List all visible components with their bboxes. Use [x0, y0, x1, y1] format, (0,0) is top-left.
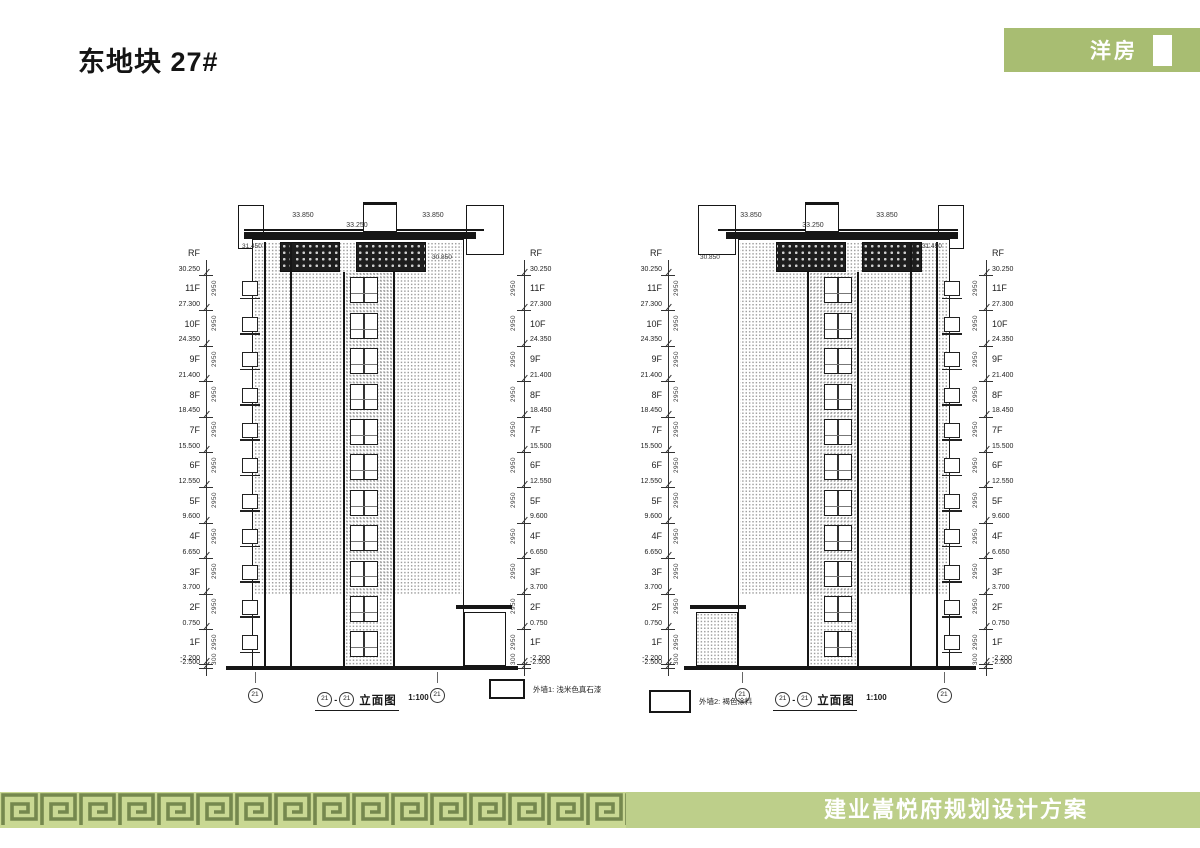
dim-label: 2950 — [211, 280, 218, 296]
dim-label: 2950 — [673, 598, 680, 614]
parapet-elev-label: 30.850 — [432, 254, 452, 261]
small-window — [944, 458, 960, 473]
level-tick — [979, 452, 993, 453]
elevation-label: 27.300 — [166, 301, 200, 308]
window — [350, 631, 378, 657]
ground-line — [226, 666, 518, 670]
level-tick — [199, 452, 213, 453]
elevation-label: 15.500 — [992, 443, 1026, 450]
dim-label: 2950 — [673, 386, 680, 402]
dim-label: 2950 — [510, 351, 517, 367]
axis-bubble: 21 — [797, 692, 812, 707]
elevation-label: 6.650 — [166, 549, 200, 556]
greek-key-pattern — [0, 792, 626, 828]
level-tick — [517, 452, 531, 453]
level-tick — [517, 668, 531, 669]
level-tick — [199, 417, 213, 418]
dim-label: 2950 — [972, 457, 979, 473]
level-tick — [661, 381, 675, 382]
dim-label: 300 — [972, 653, 979, 665]
dim-label: 2950 — [972, 563, 979, 579]
elevation-label: 24.350 — [628, 336, 662, 343]
elevation-label: 0.750 — [166, 620, 200, 627]
caption-title: 立面图 — [359, 692, 397, 708]
dim-label: 2950 — [972, 315, 979, 331]
annex-canopy — [690, 605, 746, 609]
elevation-label: 24.350 — [992, 336, 1026, 343]
floor-label: 9F — [166, 354, 200, 364]
elevation-label: 15.500 — [628, 443, 662, 450]
roof-dim-label: 33.850 — [852, 212, 922, 219]
window — [350, 525, 378, 551]
legend-label: 外墙2: 褐色涂料 — [699, 696, 752, 707]
dim-label: 2950 — [972, 492, 979, 508]
elevation-label: 21.400 — [530, 372, 564, 379]
floor-label: 10F — [530, 319, 564, 329]
level-tick — [979, 381, 993, 382]
decorative-lattice-band — [280, 242, 340, 272]
axis-bubble: 21 — [775, 692, 790, 707]
window — [824, 596, 852, 622]
dim-label: 2950 — [211, 528, 218, 544]
small-window — [242, 317, 258, 332]
floor-label: 5F — [628, 496, 662, 506]
elevation-label: 27.300 — [628, 301, 662, 308]
ground-line — [684, 666, 976, 670]
small-window — [944, 423, 960, 438]
project-title: 建业嵩悦府规划设计方案 — [824, 792, 1088, 828]
axis-bubble: 21 — [317, 692, 332, 707]
dim-label: 2950 — [673, 528, 680, 544]
legend-swatch — [489, 679, 525, 699]
dim-label: 2950 — [673, 315, 680, 331]
small-window — [242, 635, 258, 650]
level-tick — [661, 452, 675, 453]
dim-label: 2950 — [510, 634, 517, 650]
level-tick — [517, 629, 531, 630]
caption-scale: 1:100 — [866, 693, 886, 702]
dim-label: 2950 — [510, 386, 517, 402]
floor-label: 11F — [628, 283, 662, 293]
floor-label: 3F — [530, 567, 564, 577]
decorative-lattice-band — [356, 242, 426, 272]
small-window — [944, 635, 960, 650]
level-scale-right-outer: RF30.250295011F27.300295010F24.35029509F… — [968, 168, 1026, 684]
floor-label: 1F — [628, 637, 662, 647]
window — [824, 490, 852, 516]
elevation-label: 6.650 — [628, 549, 662, 556]
small-window — [944, 565, 960, 580]
elevation-label: 3.700 — [166, 584, 200, 591]
dim-label: 2950 — [211, 492, 218, 508]
elevation-label: 21.400 — [628, 372, 662, 379]
floor-label: 8F — [166, 390, 200, 400]
level-tick — [517, 487, 531, 488]
roof-slab — [726, 232, 958, 239]
small-window — [242, 458, 258, 473]
parapet-elev-label: 31.450 — [922, 243, 942, 250]
dim-label: 2950 — [211, 457, 218, 473]
level-tick — [199, 310, 213, 311]
elevation-label: 9.600 — [628, 513, 662, 520]
elevation-label: 30.250 — [628, 266, 662, 273]
elevation-label: -2.500 — [628, 659, 662, 666]
window — [824, 384, 852, 410]
level-tick — [199, 275, 213, 276]
dim-label: 2950 — [211, 351, 218, 367]
elevation-label: 15.500 — [530, 443, 564, 450]
small-window — [944, 600, 960, 615]
parapet-elev-label: 31.450 — [242, 243, 262, 250]
dim-label: 2950 — [673, 634, 680, 650]
roof-dim-label: 33.850 — [398, 212, 468, 219]
small-window — [242, 388, 258, 403]
elevation-label: -2.500 — [992, 659, 1026, 666]
floor-label: 4F — [992, 531, 1026, 541]
elevation-label: 0.750 — [992, 620, 1026, 627]
dim-label: 2950 — [510, 457, 517, 473]
elevation-label: 18.450 — [992, 407, 1026, 414]
floor-label: 4F — [166, 531, 200, 541]
dim-label: 2950 — [510, 492, 517, 508]
small-window — [944, 388, 960, 403]
floor-label: 11F — [992, 283, 1026, 293]
dim-label: 2950 — [211, 634, 218, 650]
legend-label: 外墙1: 浅米色真石漆 — [533, 684, 601, 695]
dim-label: 2950 — [211, 563, 218, 579]
floor-label: 6F — [530, 460, 564, 470]
floor-label: 5F — [166, 496, 200, 506]
axis-separator: - — [334, 695, 337, 705]
level-tick — [661, 417, 675, 418]
window — [350, 277, 378, 303]
dim-label: 2950 — [673, 492, 680, 508]
level-scale-left-outer: RF30.250295011F27.300295010F24.35029509F… — [166, 168, 224, 684]
floor-label: 4F — [530, 531, 564, 541]
floor-label: 3F — [628, 567, 662, 577]
small-window — [242, 529, 258, 544]
decorative-lattice-band — [776, 242, 846, 272]
decorative-lattice-band — [862, 242, 922, 272]
level-tick — [979, 346, 993, 347]
presentation-slide: 东地块 27# 洋房 RF30.250295011F27.300295010F2… — [0, 0, 1200, 848]
axis-separator: - — [792, 695, 795, 705]
level-tick — [517, 310, 531, 311]
facade-line — [910, 242, 912, 668]
level-tick — [661, 346, 675, 347]
legend-exterior-wall-2: 外墙2: 褐色涂料 — [649, 690, 752, 713]
dim-label: 300 — [510, 653, 517, 665]
small-window — [944, 494, 960, 509]
dim-label: 2950 — [972, 634, 979, 650]
level-tick — [661, 275, 675, 276]
dim-label: 2950 — [972, 421, 979, 437]
small-window — [944, 317, 960, 332]
floor-label: 9F — [628, 354, 662, 364]
badge-marker-icon — [1153, 35, 1172, 66]
roof-slab — [244, 232, 476, 239]
level-tick — [199, 346, 213, 347]
floor-label: 4F — [628, 531, 662, 541]
floor-label: RF — [530, 248, 564, 258]
level-tick — [199, 668, 213, 669]
floor-label: 1F — [530, 637, 564, 647]
floor-label: 10F — [628, 319, 662, 329]
elevation-label: 9.600 — [992, 513, 1026, 520]
elevation-label: -2.500 — [166, 659, 200, 666]
floor-label: 9F — [530, 354, 564, 364]
level-tick — [661, 558, 675, 559]
window — [350, 348, 378, 374]
window — [350, 419, 378, 445]
window — [350, 384, 378, 410]
dim-label: 2950 — [510, 421, 517, 437]
legend-swatch — [649, 690, 691, 713]
elevation-label: 0.750 — [530, 620, 564, 627]
facade-line — [936, 242, 938, 668]
caption-scale: 1:100 — [408, 693, 428, 702]
floor-label: 11F — [166, 283, 200, 293]
dim-label: 2950 — [673, 421, 680, 437]
level-tick — [979, 487, 993, 488]
small-window — [242, 600, 258, 615]
building-elevation-left — [238, 168, 506, 680]
elevation-label: 12.550 — [992, 478, 1026, 485]
level-tick — [199, 381, 213, 382]
elevation-label: 24.350 — [530, 336, 564, 343]
floor-label: 5F — [530, 496, 564, 506]
window — [824, 631, 852, 657]
dim-label: 2950 — [510, 315, 517, 331]
small-window — [944, 281, 960, 296]
category-badge: 洋房 — [1004, 28, 1200, 72]
parapet-elev-label: 30.850 — [700, 254, 720, 261]
floor-label: RF — [166, 248, 200, 258]
level-tick — [661, 487, 675, 488]
window — [824, 561, 852, 587]
window — [824, 525, 852, 551]
floor-label: 1F — [992, 637, 1026, 647]
dim-label: 2950 — [673, 280, 680, 296]
roof-dim-label: 33.250 — [322, 222, 392, 229]
elevation-label: 9.600 — [166, 513, 200, 520]
dim-label: 2950 — [510, 528, 517, 544]
elevation-label: 18.450 — [530, 407, 564, 414]
elevation-label: 3.700 — [530, 584, 564, 591]
dim-label: 300 — [673, 653, 680, 665]
level-tick — [517, 346, 531, 347]
level-tick — [199, 523, 213, 524]
window — [350, 454, 378, 480]
roof-dim-label: 33.850 — [268, 212, 338, 219]
dim-label: 2950 — [673, 563, 680, 579]
window — [824, 313, 852, 339]
scale-line — [986, 260, 987, 676]
floor-label: RF — [992, 248, 1026, 258]
roof-dim-label: 33.850 — [716, 212, 786, 219]
floor-label: 2F — [530, 602, 564, 612]
level-tick — [517, 417, 531, 418]
level-tick — [517, 275, 531, 276]
entrance-annex — [464, 612, 506, 666]
elevation-label: 24.350 — [166, 336, 200, 343]
floor-label: 8F — [628, 390, 662, 400]
building-graphics — [238, 168, 506, 680]
elevation-label: 15.500 — [166, 443, 200, 450]
floor-label: 10F — [992, 319, 1026, 329]
floor-label: 5F — [992, 496, 1026, 506]
elevation-label: 12.550 — [530, 478, 564, 485]
dim-label: 2950 — [211, 315, 218, 331]
level-tick — [199, 629, 213, 630]
level-tick — [517, 381, 531, 382]
floor-label: 7F — [166, 425, 200, 435]
elevation-label: 12.550 — [628, 478, 662, 485]
small-window — [242, 281, 258, 296]
dim-label: 300 — [211, 653, 218, 665]
level-scale-left-inner: RF30.250295011F27.300295010F24.35029509F… — [506, 168, 564, 684]
entrance-annex — [696, 612, 738, 666]
dim-label: 2950 — [972, 598, 979, 614]
floor-label: 3F — [992, 567, 1026, 577]
level-tick — [979, 629, 993, 630]
small-window — [944, 352, 960, 367]
page-title: 东地块 27# — [78, 40, 219, 79]
floor-label: 7F — [992, 425, 1026, 435]
level-tick — [661, 523, 675, 524]
small-window — [242, 423, 258, 438]
level-tick — [517, 558, 531, 559]
elevation-label: 18.450 — [628, 407, 662, 414]
annex-canopy — [456, 605, 512, 609]
caption-title: 立面图 — [817, 692, 855, 708]
dim-label: 2950 — [972, 386, 979, 402]
small-window — [242, 352, 258, 367]
floor-label: 1F — [166, 637, 200, 647]
level-tick — [661, 629, 675, 630]
elevation-label: 27.300 — [992, 301, 1026, 308]
level-tick — [199, 594, 213, 595]
floor-label: 10F — [166, 319, 200, 329]
small-window — [944, 529, 960, 544]
drawing-caption-left: 21-21立面图 1:100 — [238, 687, 506, 711]
level-tick — [979, 275, 993, 276]
window — [824, 454, 852, 480]
dim-label: 2950 — [211, 598, 218, 614]
elevation-label: 30.250 — [166, 266, 200, 273]
floor-label: 6F — [628, 460, 662, 470]
axis-bubble: 21 — [339, 692, 354, 707]
level-tick — [979, 558, 993, 559]
badge-label: 洋房 — [1090, 35, 1138, 65]
elevation-label: 6.650 — [530, 549, 564, 556]
level-tick — [979, 523, 993, 524]
level-tick — [199, 558, 213, 559]
dim-label: 2950 — [510, 280, 517, 296]
elevation-label: 27.300 — [530, 301, 564, 308]
floor-label: 9F — [992, 354, 1026, 364]
small-window — [242, 494, 258, 509]
facade-line — [264, 242, 266, 668]
level-tick — [517, 523, 531, 524]
floor-label: 7F — [628, 425, 662, 435]
roof-dim-label: 33.250 — [778, 222, 848, 229]
level-tick — [517, 594, 531, 595]
floor-label: 7F — [530, 425, 564, 435]
elevation-label: 12.550 — [166, 478, 200, 485]
window — [824, 348, 852, 374]
floor-label: 8F — [530, 390, 564, 400]
window — [350, 313, 378, 339]
elevation-label: 21.400 — [166, 372, 200, 379]
facade-line — [290, 242, 292, 668]
scale-line — [524, 260, 525, 676]
level-tick — [979, 310, 993, 311]
elevation-label: 0.750 — [628, 620, 662, 627]
level-tick — [979, 594, 993, 595]
elevation-label: 3.700 — [992, 584, 1026, 591]
elevation-label: 18.450 — [166, 407, 200, 414]
dim-label: 2950 — [972, 280, 979, 296]
small-window — [242, 565, 258, 580]
level-tick — [661, 310, 675, 311]
window — [824, 277, 852, 303]
dim-label: 2950 — [673, 457, 680, 473]
floor-label: 2F — [992, 602, 1026, 612]
dim-label: 2950 — [972, 528, 979, 544]
dim-label: 2950 — [211, 421, 218, 437]
floor-label: 6F — [166, 460, 200, 470]
window — [350, 561, 378, 587]
scale-line — [206, 260, 207, 676]
floor-label: 2F — [628, 602, 662, 612]
elevation-label: 30.250 — [530, 266, 564, 273]
elevation-label: 6.650 — [992, 549, 1026, 556]
elevation-label: -2.500 — [530, 659, 564, 666]
floor-label: RF — [628, 248, 662, 258]
floor-label: 2F — [166, 602, 200, 612]
scale-line — [668, 260, 669, 676]
elevation-label: 9.600 — [530, 513, 564, 520]
floor-label: 11F — [530, 283, 564, 293]
legend-exterior-wall-1: 外墙1: 浅米色真石漆 — [489, 679, 601, 699]
dim-label: 2950 — [211, 386, 218, 402]
elevation-label: 21.400 — [992, 372, 1026, 379]
level-tick — [661, 668, 675, 669]
level-tick — [979, 668, 993, 669]
dim-label: 2950 — [972, 351, 979, 367]
floor-label: 6F — [992, 460, 1026, 470]
floor-label: 3F — [166, 567, 200, 577]
dim-label: 2950 — [673, 351, 680, 367]
elevation-label: 3.700 — [628, 584, 662, 591]
dim-label: 2950 — [510, 563, 517, 579]
window — [350, 490, 378, 516]
window — [824, 419, 852, 445]
elevation-label: 30.250 — [992, 266, 1026, 273]
level-tick — [661, 594, 675, 595]
window — [350, 596, 378, 622]
level-tick — [199, 487, 213, 488]
floor-label: 8F — [992, 390, 1026, 400]
level-scale-right-inner: RF30.250295011F27.300295010F24.35029509F… — [628, 168, 686, 684]
level-tick — [979, 417, 993, 418]
